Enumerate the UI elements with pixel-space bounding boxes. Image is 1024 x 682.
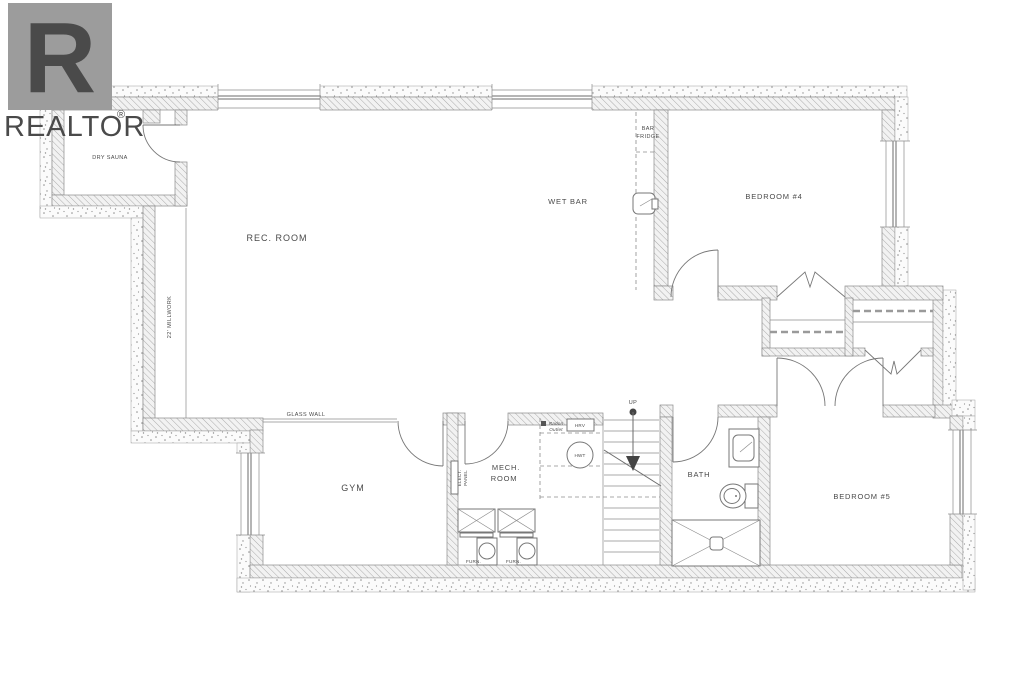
wall bbox=[845, 286, 943, 300]
wall bbox=[237, 578, 975, 592]
toilet bbox=[720, 484, 758, 508]
label-hwt: HWT bbox=[574, 453, 585, 458]
door-bedroom-4 bbox=[671, 250, 718, 297]
bifold-door-bedroom4-closet bbox=[777, 272, 845, 297]
label-furnace-1: FURN. bbox=[466, 559, 481, 564]
wall bbox=[52, 195, 187, 206]
window-bedroom-4 bbox=[880, 141, 910, 227]
room-label-dry-sauna: DRY SAUNA bbox=[92, 155, 128, 161]
room-label-bath: BATH bbox=[688, 470, 711, 479]
wall bbox=[654, 286, 673, 300]
stairs bbox=[603, 409, 661, 566]
fixtures bbox=[451, 193, 760, 566]
bath-sink bbox=[733, 435, 754, 461]
door-bath bbox=[673, 417, 718, 462]
room-label-mech-room-line2: ROOM bbox=[491, 474, 518, 483]
wall bbox=[660, 417, 672, 565]
floor-plan-page: DRY SAUNA REC. ROOM WET BAR BEDROOM #4 G… bbox=[0, 0, 1024, 682]
realtor-logo-registered: ® bbox=[117, 109, 125, 121]
furnace-2 bbox=[498, 509, 537, 565]
label-radon-line1: Radon bbox=[549, 421, 564, 426]
label-stairs-up: UP bbox=[629, 400, 637, 406]
wall bbox=[762, 348, 853, 356]
wall bbox=[40, 86, 907, 97]
label-elect-panel-line1: ELECT. bbox=[457, 470, 462, 487]
door-mech-room bbox=[465, 421, 508, 464]
door-dry-sauna bbox=[143, 125, 180, 162]
window-rec-room-top-left bbox=[218, 84, 320, 111]
double-door-bedroom-5 bbox=[777, 358, 883, 406]
label-hrv: HRV bbox=[575, 423, 586, 428]
wall bbox=[52, 97, 895, 110]
label-furnace-2: FURN. bbox=[506, 559, 521, 564]
label-radon-line2: Outlet bbox=[549, 427, 563, 432]
realtor-logo: R REALTOR ® bbox=[4, 2, 145, 143]
shower bbox=[672, 520, 760, 566]
window-rec-room-top-right bbox=[492, 84, 592, 111]
wall bbox=[143, 418, 263, 431]
windows bbox=[218, 84, 977, 535]
label-glass-wall: GLASS WALL bbox=[287, 412, 326, 418]
wall bbox=[175, 162, 187, 206]
label-bar-fridge-line2: FRIDGE bbox=[636, 134, 659, 140]
floor-plan: DRY SAUNA REC. ROOM WET BAR BEDROOM #4 G… bbox=[0, 0, 1024, 682]
label-bar-fridge-line1: BAR bbox=[642, 126, 655, 132]
window-gym bbox=[236, 453, 265, 535]
label-millwork: 22' MILLWORK bbox=[167, 296, 173, 338]
wall bbox=[175, 110, 187, 125]
bar-faucet bbox=[652, 199, 658, 209]
wall bbox=[943, 290, 956, 412]
door-gym bbox=[398, 421, 443, 466]
stair-direction-arrow bbox=[626, 456, 640, 471]
wall bbox=[660, 405, 673, 417]
wall bbox=[143, 206, 155, 431]
radon-outlet-symbol bbox=[541, 421, 546, 426]
wall bbox=[131, 431, 250, 443]
realtor-logo-letter: R bbox=[24, 2, 96, 114]
wall bbox=[883, 405, 935, 417]
wall bbox=[250, 565, 962, 578]
wall bbox=[718, 405, 777, 417]
wall bbox=[762, 298, 770, 356]
room-label-wet-bar: WET BAR bbox=[548, 197, 588, 206]
wall bbox=[952, 400, 975, 416]
room-label-mech-room-line1: MECH. bbox=[492, 463, 520, 472]
wall bbox=[921, 348, 933, 356]
wall bbox=[131, 218, 143, 431]
wall bbox=[853, 348, 865, 356]
wall bbox=[933, 298, 943, 410]
room-label-bedroom-4: BEDROOM #4 bbox=[745, 192, 802, 201]
room-label-rec-room: REC. ROOM bbox=[246, 233, 307, 243]
furnace-1 bbox=[458, 509, 497, 565]
room-label-gym: GYM bbox=[341, 483, 365, 493]
label-elect-panel-line2: PANEL bbox=[463, 470, 468, 486]
wall bbox=[40, 206, 152, 218]
shower-drain bbox=[710, 537, 723, 550]
wall bbox=[143, 110, 160, 123]
window-bedroom-5 bbox=[948, 430, 977, 514]
room-label-bedroom-5: BEDROOM #5 bbox=[833, 492, 890, 501]
wall bbox=[845, 298, 853, 356]
bifold-door-hall-closet bbox=[865, 350, 921, 374]
